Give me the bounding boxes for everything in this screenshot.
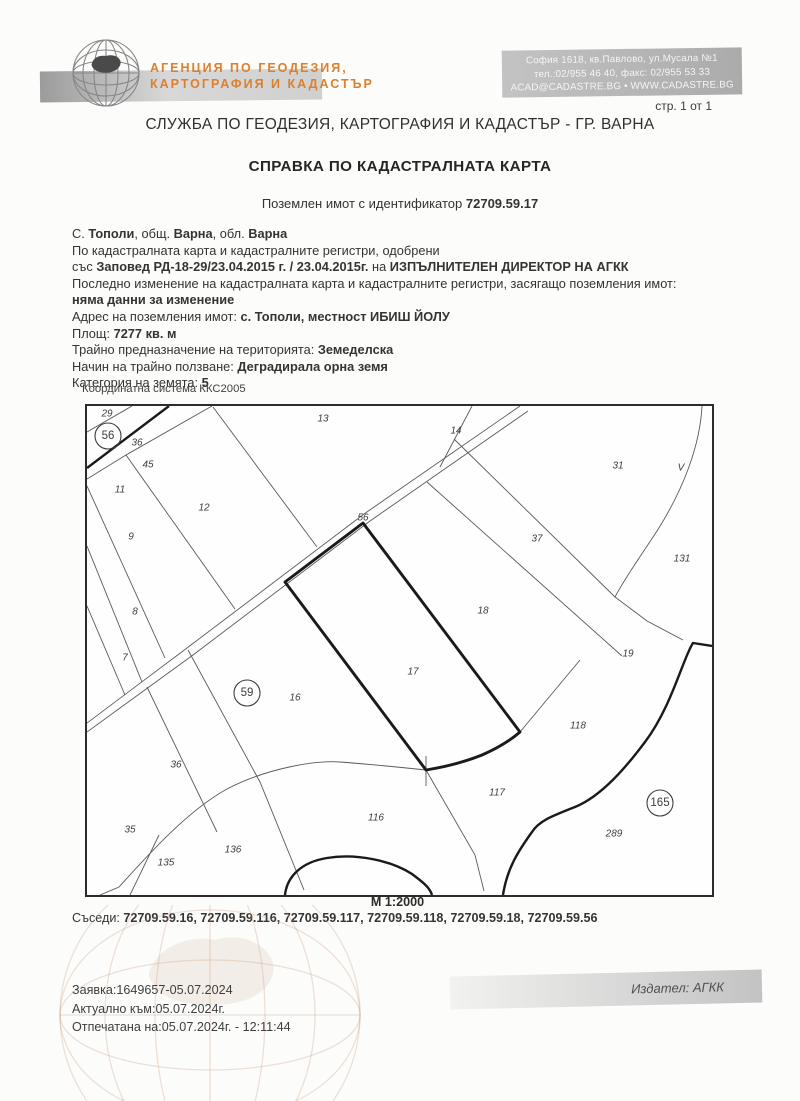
parcel-label: 13	[317, 414, 329, 425]
parcel-label: 36	[170, 760, 182, 771]
agency-name-line2: КАРТОГРАФИЯ И КАДАСТЪР	[150, 76, 410, 92]
parcel-label: 45	[142, 460, 154, 471]
parcel-label: 14	[450, 426, 462, 437]
parcel-label: 19	[622, 649, 634, 660]
parcel-label: 135	[158, 858, 175, 869]
parcel-label: 12	[198, 503, 210, 514]
office-title: СЛУЖБА ПО ГЕОДЕЗИЯ, КАРТОГРАФИЯ И КАДАСТ…	[0, 116, 800, 134]
page-indicator: стр. 1 от 1	[655, 99, 712, 113]
parcel-label: 11	[115, 485, 125, 496]
coordinate-system-label: Координатна система ККС2005	[82, 383, 246, 395]
parcel-label: 7	[122, 653, 128, 664]
page: София 1618, кв.Павлово, ул.Мусала №1тел.…	[0, 0, 800, 1101]
cadastral-map-drawing: 29563645131431V1112569371311881971759161…	[87, 406, 712, 895]
parcel-label: 56	[357, 513, 369, 524]
neighbors-values: 72709.59.16, 72709.59.116, 72709.59.117,…	[123, 911, 597, 925]
parcel-label: 118	[570, 721, 586, 732]
parcel-label: 8	[132, 607, 138, 618]
parcel-label: 289	[605, 829, 623, 840]
printed-on: Отпечатана на:05.07.2024г. - 12:11:44	[72, 1018, 291, 1037]
detail-line: Площ: 7277 кв. м	[72, 326, 742, 343]
parcel-label: 117	[489, 788, 505, 799]
subtitle-prefix: Поземлен имот с идентификатор	[262, 196, 466, 211]
parcel-label: 36	[131, 438, 143, 449]
property-details: С. Тополи, общ. Варна, обл. ВарнаПо када…	[72, 226, 742, 392]
parcel-label: V	[678, 463, 686, 474]
footer-lines: Заявка:1649657-05.07.2024 Актуално към:0…	[72, 981, 291, 1037]
parcel-label: 116	[368, 813, 384, 824]
neighbors-line: Съседи: 72709.59.16, 72709.59.116, 72709…	[72, 911, 598, 925]
valid-as-of: Актуално към:05.07.2024г.	[72, 1000, 291, 1019]
detail-line: По кадастралната карта и кадастралните р…	[72, 243, 742, 260]
globe-bulgaria-logo-icon	[70, 37, 142, 114]
detail-line: няма данни за изменение	[72, 292, 742, 309]
parcel-label: 35	[124, 825, 136, 836]
parcel-label: 17	[407, 667, 419, 678]
parcel-label: 59	[241, 687, 254, 699]
parcel-label: 9	[128, 532, 134, 543]
parcel-label: 56	[102, 430, 115, 442]
parcel-label: 31	[612, 461, 623, 472]
detail-line: Последно изменение на кадастралната карт…	[72, 276, 742, 293]
detail-line: С. Тополи, общ. Варна, обл. Варна	[72, 226, 742, 243]
detail-line: Адрес на поземления имот: с. Тополи, мес…	[72, 309, 742, 326]
parcel-label: 16	[289, 693, 301, 704]
address-line: ACAD@CADASTRE.BG • WWW.CADASTRE.BG	[502, 78, 742, 95]
issuer-bar: Издател: АГКК	[450, 969, 763, 1009]
detail-line: със Заповед РД-18-29/23.04.2015 г. / 23.…	[72, 259, 742, 276]
detail-line: Трайно предназначение на територията: Зе…	[72, 342, 742, 359]
agency-name: АГЕНЦИЯ ПО ГЕОДЕЗИЯ, КАРТОГРАФИЯ И КАДАС…	[150, 60, 410, 92]
parcel-label: 165	[650, 797, 669, 809]
detail-line: Начин на трайно ползване: Деградирала ор…	[72, 359, 742, 376]
request-number: Заявка:1649657-05.07.2024	[72, 981, 291, 1000]
agency-name-line1: АГЕНЦИЯ ПО ГЕОДЕЗИЯ,	[150, 60, 410, 76]
parcel-labels: 29563645131431V1112569371311881971759161…	[95, 409, 690, 869]
parcel-label: 29	[100, 409, 113, 420]
map-thick-lines	[87, 406, 712, 895]
cadastral-map: 29563645131431V1112569371311881971759161…	[85, 404, 714, 897]
parcel-label: 18	[477, 606, 489, 617]
parcel-label: 131	[674, 554, 691, 565]
neighbors-label: Съседи:	[72, 911, 123, 925]
parcel-boundary-lines	[87, 406, 702, 895]
parcel-label: 37	[531, 534, 543, 545]
scale-label: М 1:2000	[85, 895, 710, 909]
subject-parcel-outline	[285, 523, 520, 770]
parcel-label: 136	[225, 845, 242, 856]
property-id-line: Поземлен имот с идентификатор 72709.59.1…	[0, 196, 800, 211]
property-id: 72709.59.17	[466, 196, 538, 211]
address-block: София 1618, кв.Павлово, ул.Мусала №1тел.…	[502, 47, 743, 97]
document-title: СПРАВКА ПО КАДАСТРАЛНАТА КАРТА	[0, 158, 800, 175]
